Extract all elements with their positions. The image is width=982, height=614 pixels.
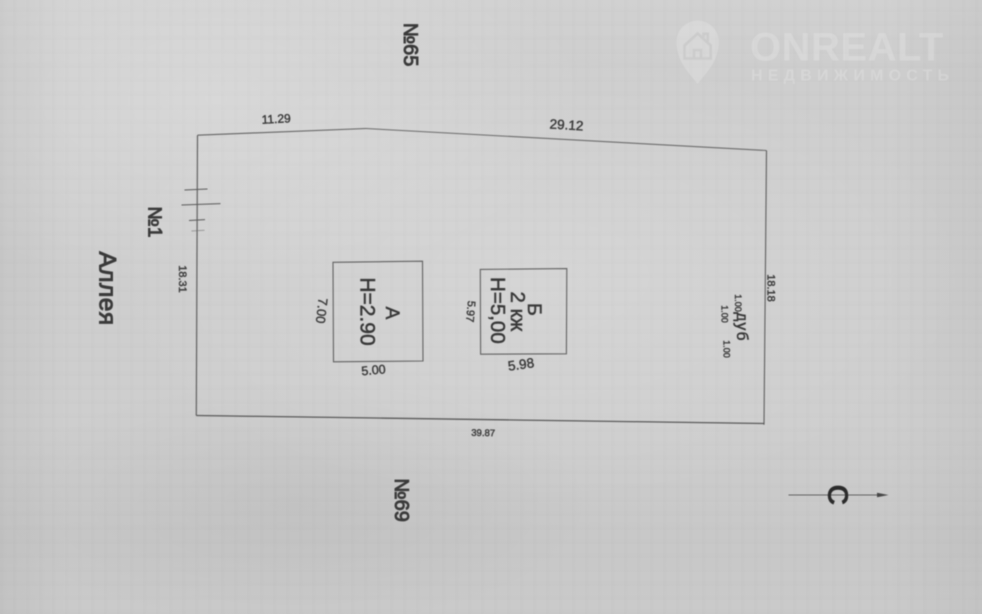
svg-text:А: А xyxy=(381,307,402,320)
svg-text:ONREALT: ONREALT xyxy=(750,26,944,70)
svg-text:1.00: 1.00 xyxy=(722,340,732,358)
svg-text:18.31: 18.31 xyxy=(176,265,188,293)
svg-text:7.00: 7.00 xyxy=(313,297,331,324)
svg-text:Аллея: Аллея xyxy=(93,251,120,325)
svg-text:29.12: 29.12 xyxy=(549,116,584,133)
svg-text:5.00: 5.00 xyxy=(361,362,387,378)
svg-text:№69: №69 xyxy=(390,478,412,522)
svg-text:НЕДВИЖИМОСТЬ: НЕДВИЖИМОСТЬ xyxy=(751,68,954,85)
svg-text:39.87: 39.87 xyxy=(471,428,495,439)
svg-text:18.18: 18.18 xyxy=(765,274,777,302)
svg-text:С: С xyxy=(821,484,853,505)
svg-text:11.29: 11.29 xyxy=(261,111,291,127)
svg-text:№65: №65 xyxy=(399,23,421,67)
svg-text:5.97: 5.97 xyxy=(463,300,477,322)
svg-text:№1: №1 xyxy=(143,207,164,238)
svg-text:5.98: 5.98 xyxy=(507,355,535,374)
svg-text:дуб: дуб xyxy=(733,312,750,341)
svg-text:1.00: 1.00 xyxy=(733,294,743,312)
svg-text:Н=5,00: Н=5,00 xyxy=(486,277,509,344)
svg-text:1.00: 1.00 xyxy=(720,305,730,323)
svg-text:Н=2.90: Н=2.90 xyxy=(356,277,379,345)
